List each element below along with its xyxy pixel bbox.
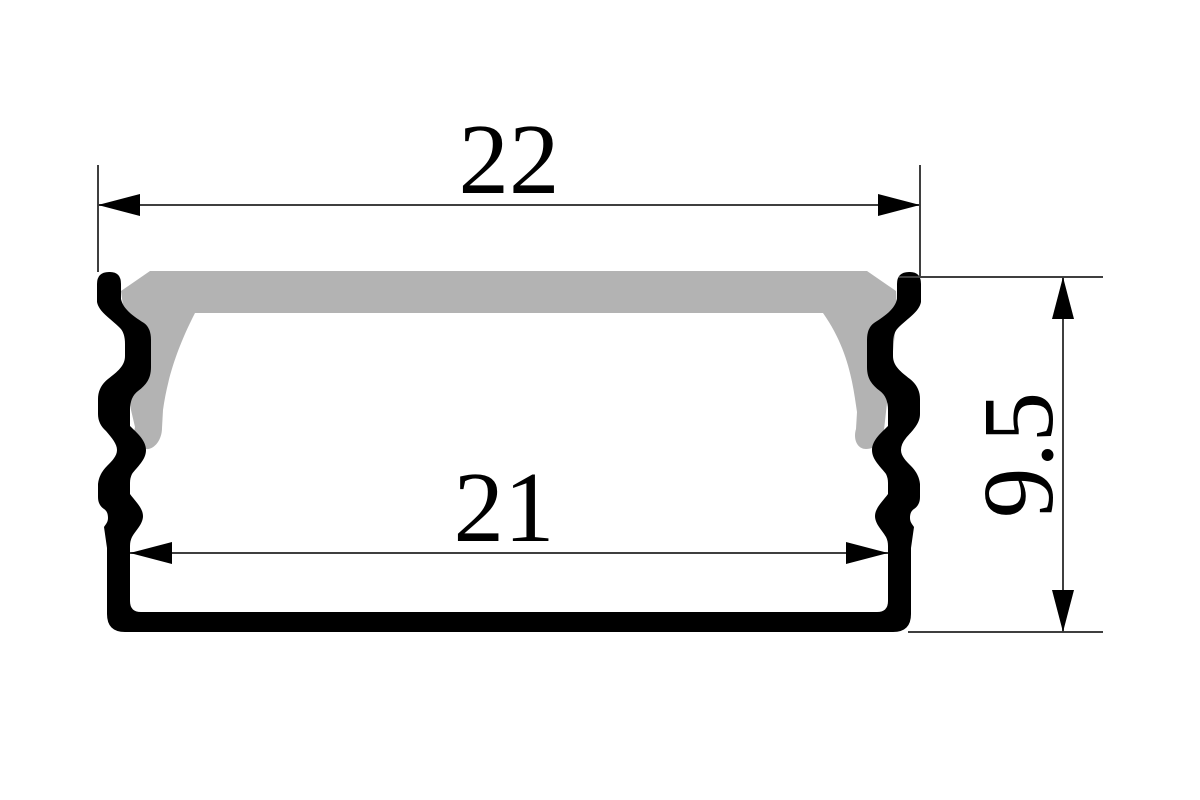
arrowhead-up-icon — [1052, 277, 1074, 319]
dimension-label-height: 9.5 — [962, 392, 1074, 518]
dimension-label-outer-width: 22 — [459, 103, 560, 215]
arrowhead-left-icon — [98, 194, 140, 216]
dimension-outer-width: 22 — [98, 103, 920, 277]
technical-drawing-canvas: 22 21 9.5 — [0, 0, 1200, 800]
arrowhead-right-icon — [878, 194, 920, 216]
profile-cross-section-drawing: 22 21 9.5 — [0, 0, 1200, 800]
dimension-height: 9.5 — [899, 277, 1103, 632]
arrowhead-down-icon — [1052, 590, 1074, 632]
dimension-inner-width: 21 — [130, 451, 888, 564]
diffuser-cover-shape — [121, 271, 897, 449]
dimension-label-inner-width: 21 — [454, 451, 555, 563]
arrowhead-right-icon — [846, 542, 888, 564]
arrowhead-left-icon — [130, 542, 172, 564]
